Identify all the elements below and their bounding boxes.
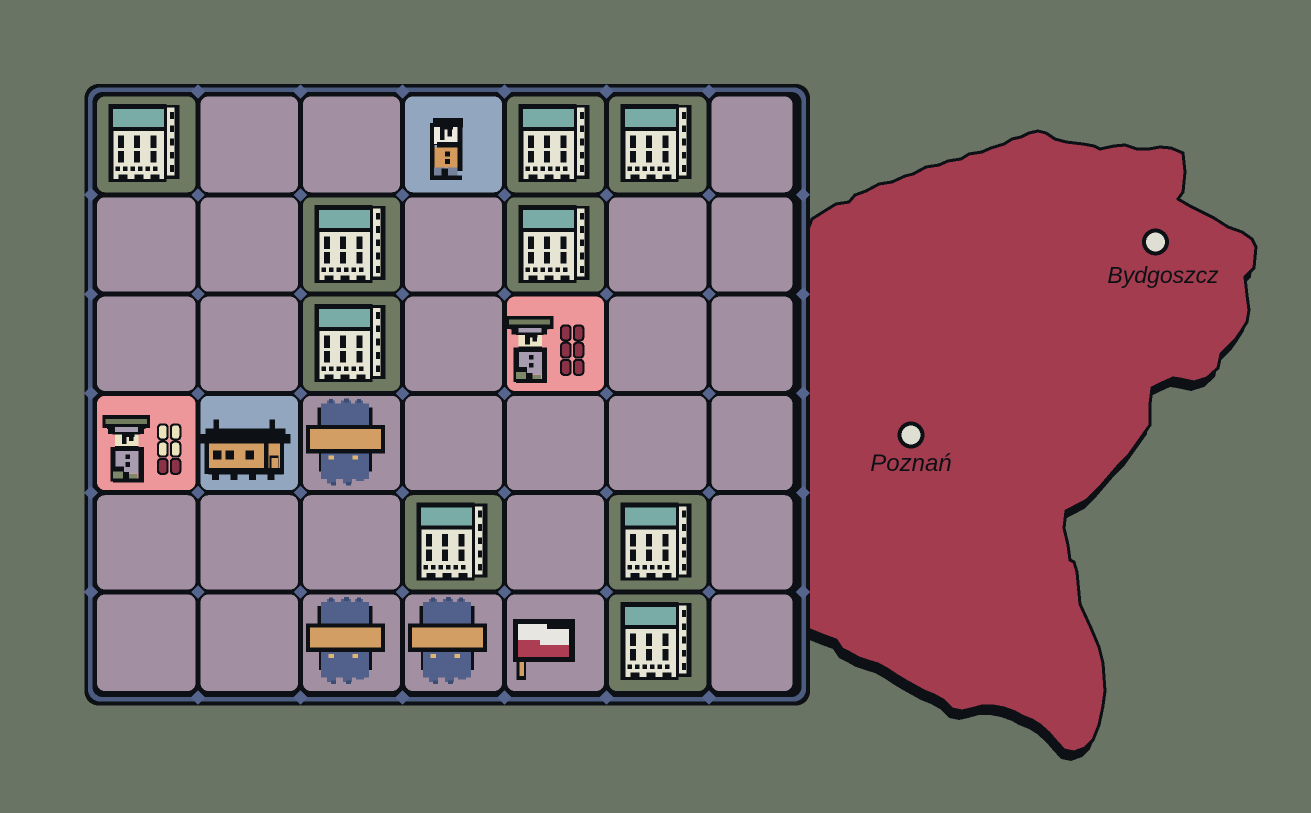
svg-text:Poznań: Poznań (870, 450, 951, 477)
svg-text:Bydgoszcz: Bydgoszcz (1107, 262, 1219, 288)
